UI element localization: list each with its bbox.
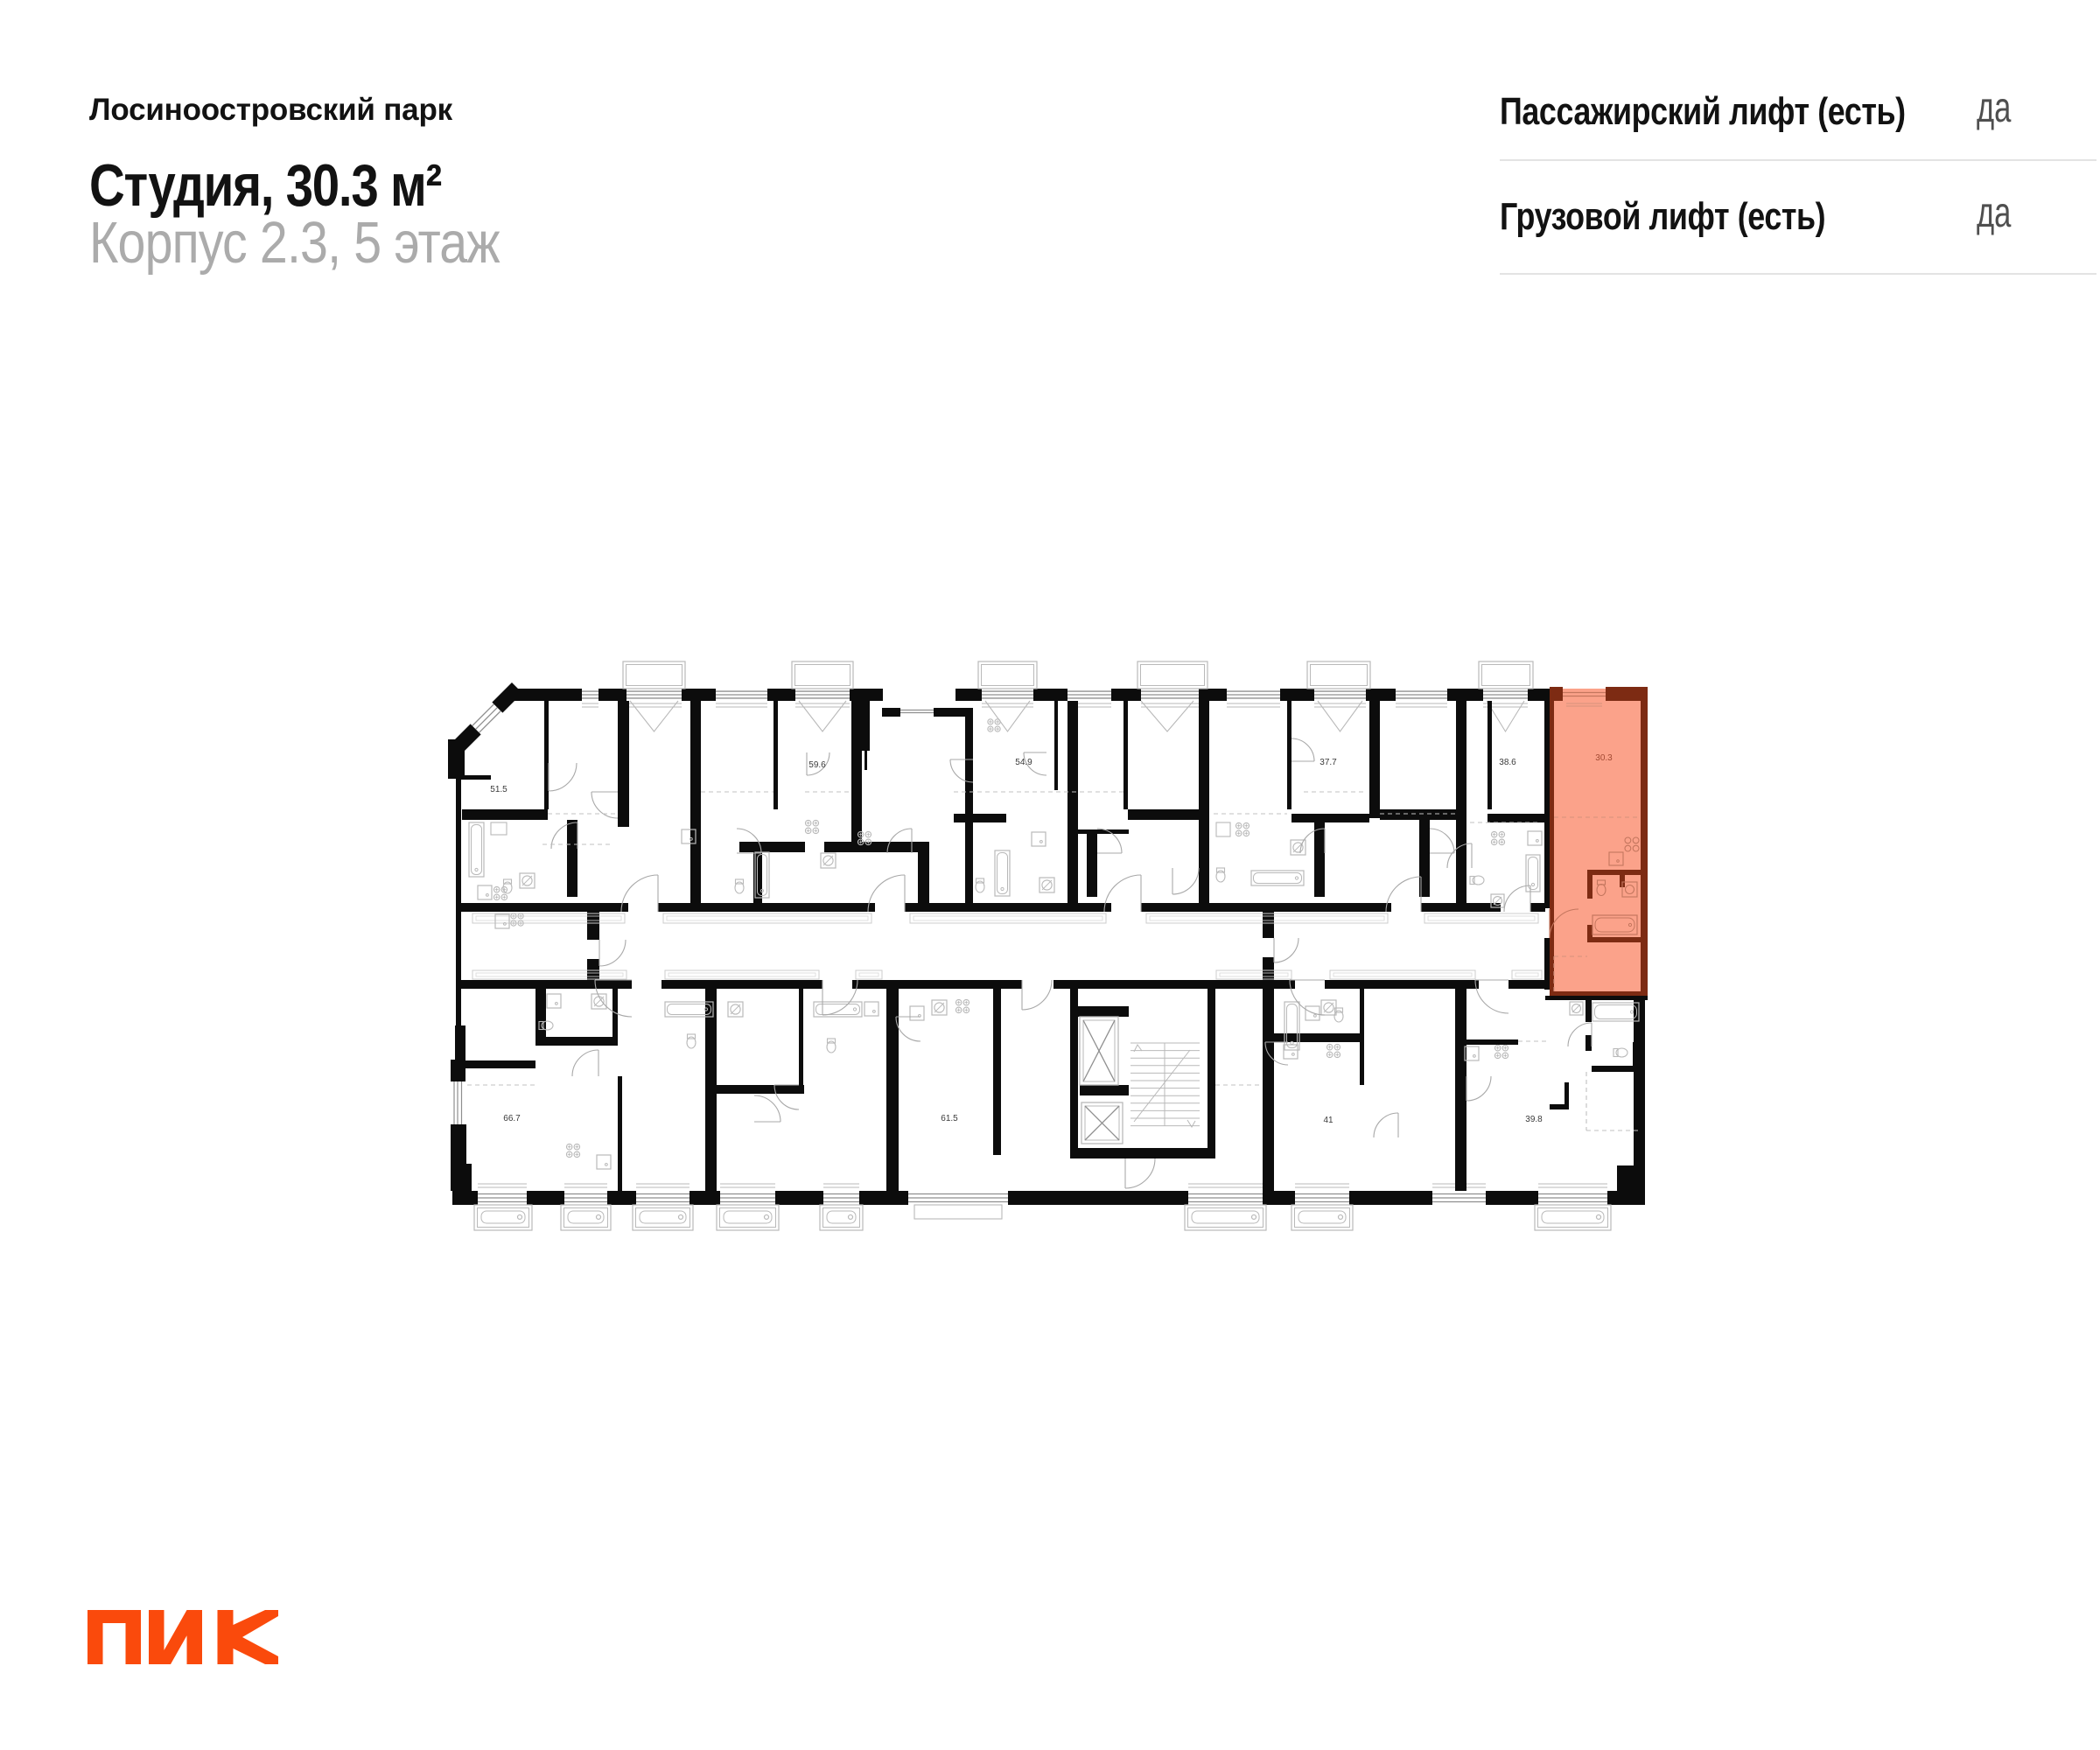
svg-text:37.7: 37.7	[1319, 758, 1337, 767]
svg-text:41: 41	[1323, 1116, 1333, 1125]
svg-text:66.7: 66.7	[503, 1114, 521, 1123]
svg-text:59.6: 59.6	[808, 760, 826, 770]
svg-text:39.8: 39.8	[1525, 1115, 1543, 1124]
svg-text:30.3: 30.3	[1595, 753, 1613, 763]
svg-text:54.9: 54.9	[1015, 758, 1032, 767]
svg-text:51.5: 51.5	[490, 785, 507, 794]
svg-text:38.6: 38.6	[1499, 758, 1516, 767]
svg-text:61.5: 61.5	[941, 1114, 958, 1123]
